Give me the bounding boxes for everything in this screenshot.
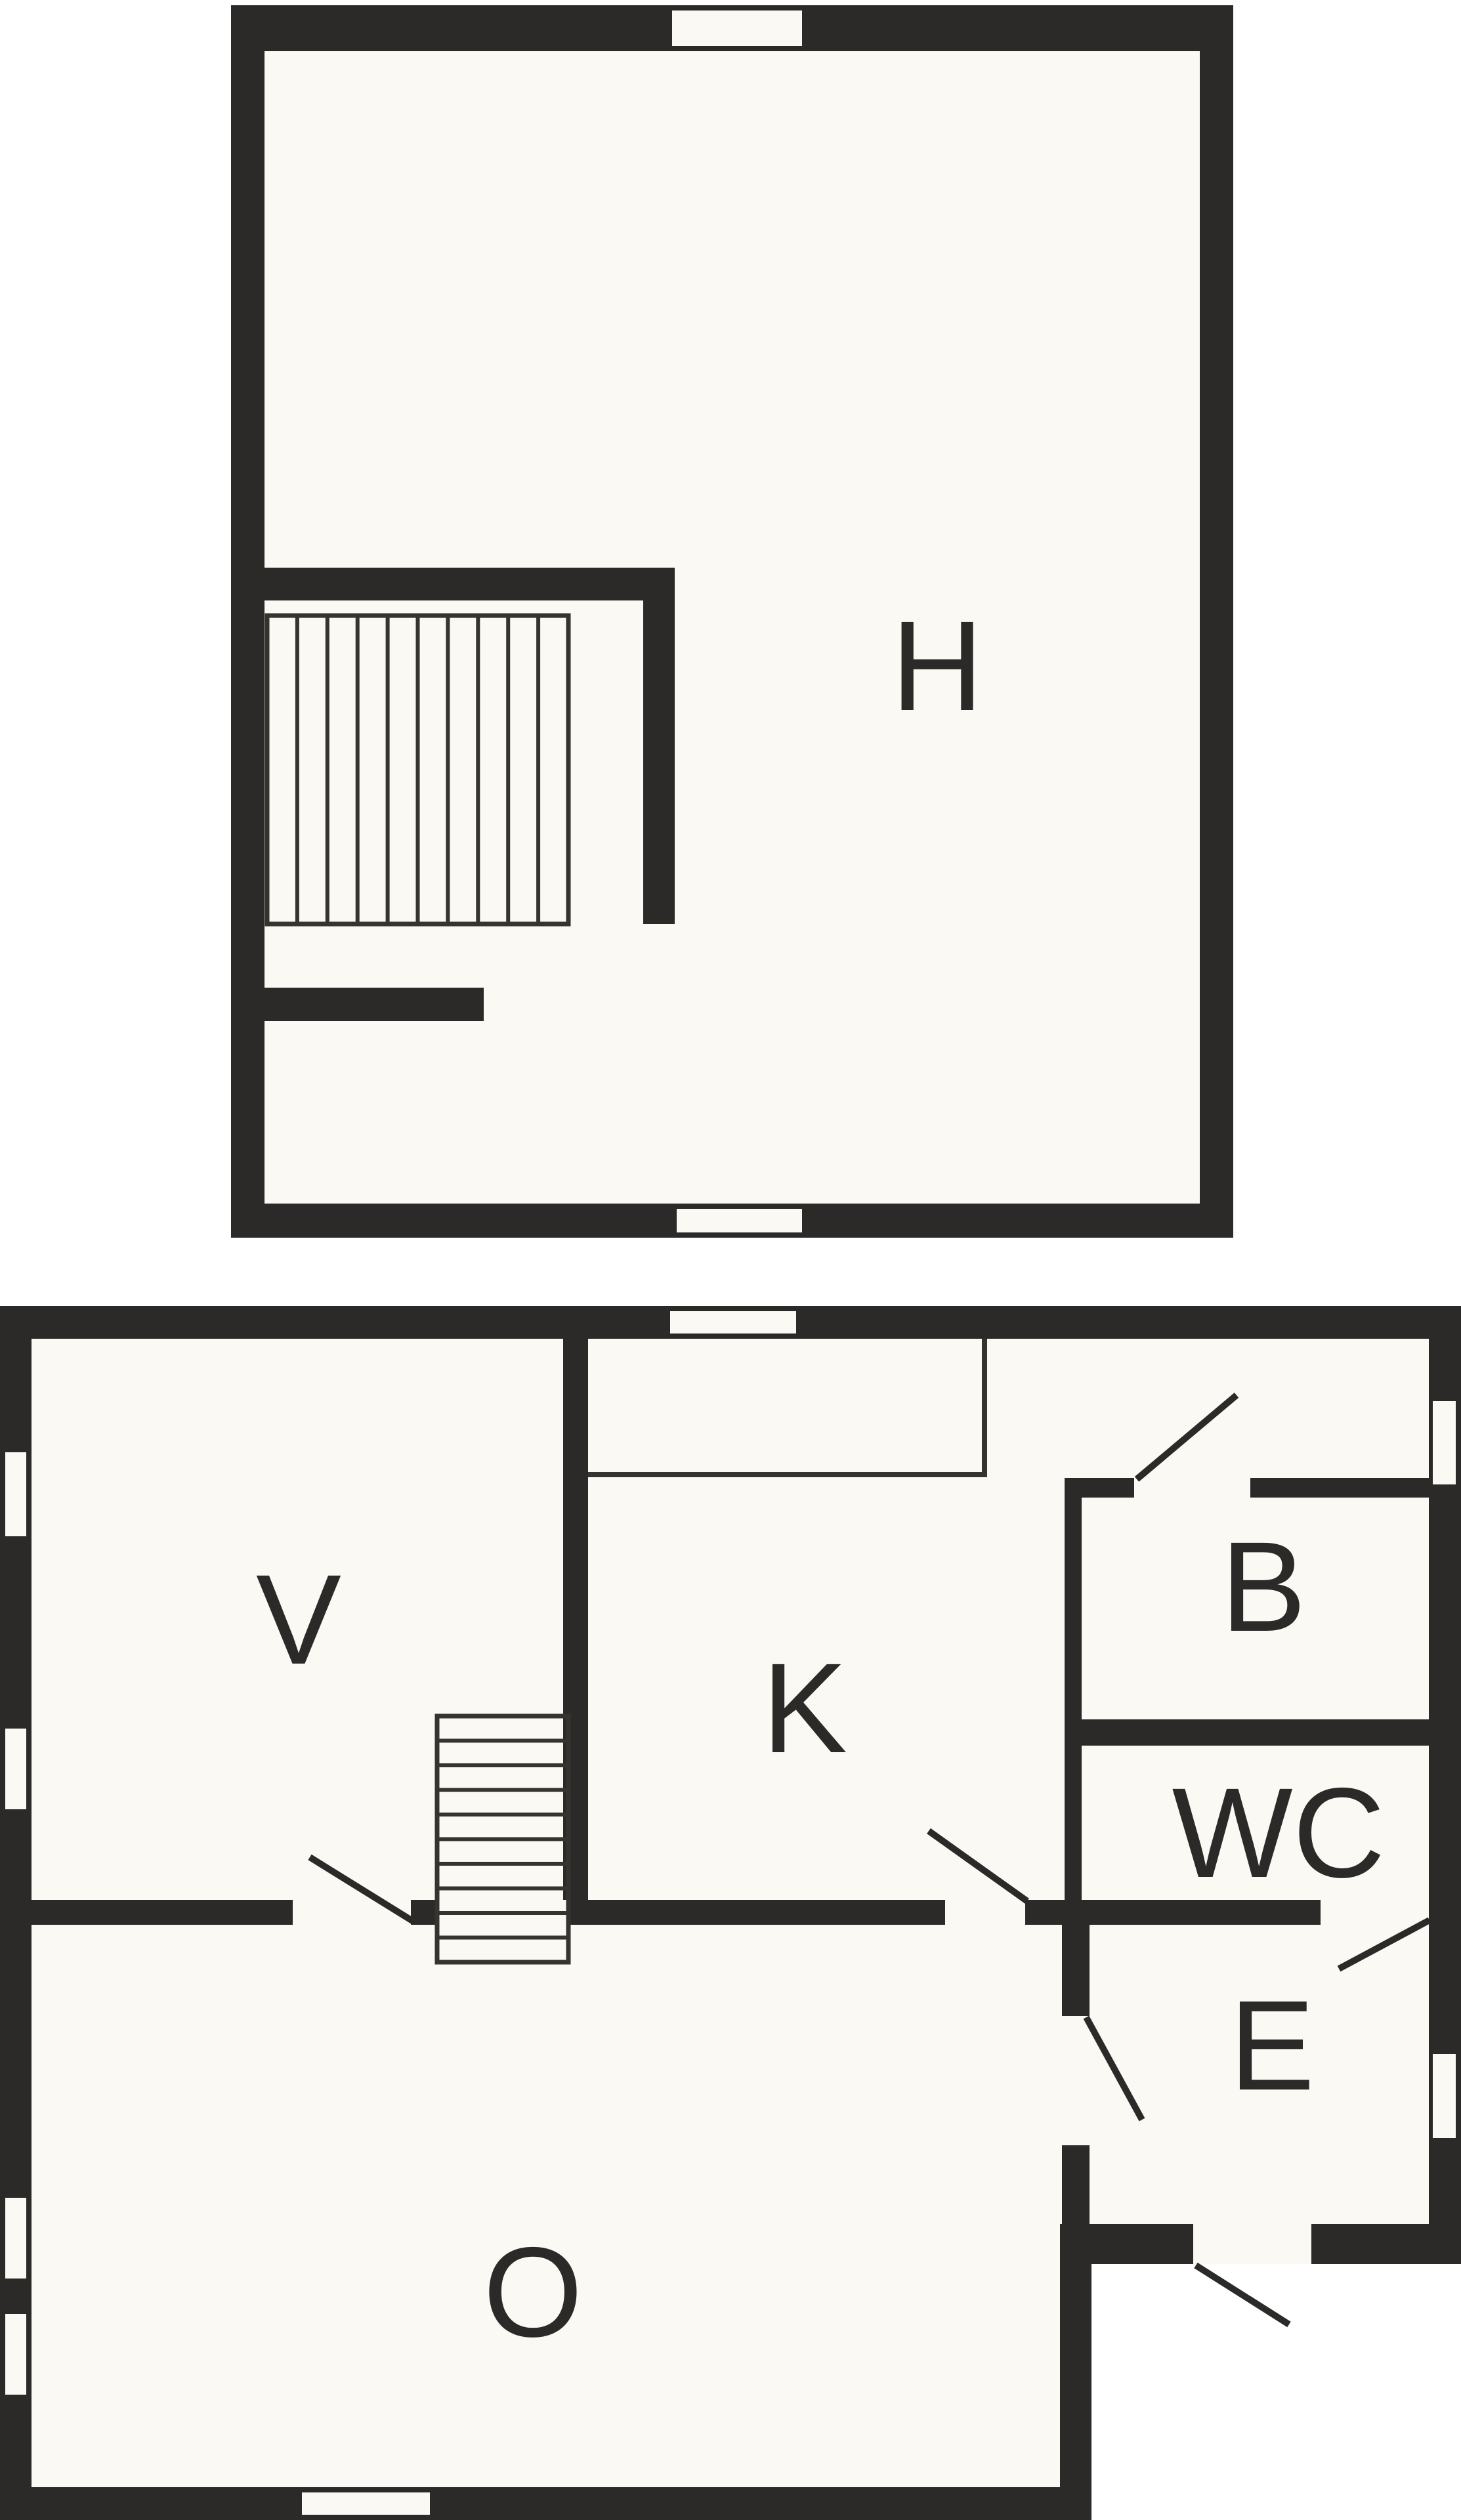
room-label-h: H — [891, 595, 984, 738]
below-e-vertical-wall — [1060, 2224, 1091, 2520]
floor-plan-page: HVKBWCEO — [0, 0, 1461, 2520]
mid-wall-segment-1 — [32, 1900, 293, 1925]
left-window-3 — [5, 2198, 26, 2278]
left-window-2 — [5, 1729, 26, 1809]
k-b-wall — [1065, 1478, 1082, 1900]
upper-right-wall — [1200, 5, 1233, 1238]
kitchen-counter-right-line — [982, 1339, 987, 1477]
upper-stair-wall-stub — [265, 988, 484, 1021]
mid-wall-segment-3 — [568, 1900, 945, 1925]
e-exterior-door-swing — [1196, 2265, 1289, 2324]
lower-top-window — [670, 1311, 796, 1333]
room-label-v: V — [256, 1548, 341, 1691]
lower-bottom-wall — [0, 2487, 1091, 2520]
upper-left-wall — [231, 5, 265, 1238]
right-window-2 — [1433, 2054, 1456, 2138]
b-top-wall-left — [1065, 1478, 1134, 1498]
upper-bottom-window — [677, 1209, 802, 1232]
upper-floor-interior — [231, 5, 1233, 1238]
upper-stair-wall-right — [643, 600, 675, 924]
o-e-wall-lower — [1062, 2145, 1090, 2224]
b-wc-wall — [1065, 1719, 1429, 1746]
kitchen-counter-bottom-line — [588, 1472, 987, 1477]
left-window-1 — [5, 1452, 26, 1536]
room-label-e: E — [1229, 1974, 1315, 2117]
room-label-b: B — [1221, 1515, 1306, 1658]
floor-plan-drawing: HVKBWCEO — [0, 0, 1461, 2520]
left-window-4 — [5, 2314, 26, 2395]
mid-wall-segment-2 — [411, 1900, 438, 1925]
o-e-wall-upper — [1062, 1925, 1090, 2016]
e-bottom-wall-right — [1311, 2224, 1461, 2264]
room-label-k: K — [762, 1637, 847, 1780]
right-window-1 — [1433, 1401, 1456, 1484]
upper-top-window — [672, 10, 802, 46]
b-top-wall-right — [1250, 1478, 1429, 1498]
upper-stair-wall-top — [265, 568, 675, 600]
bottom-window — [302, 2492, 430, 2515]
room-label-wc: WC — [1172, 1761, 1386, 1904]
room-label-o: O — [483, 2221, 583, 2364]
